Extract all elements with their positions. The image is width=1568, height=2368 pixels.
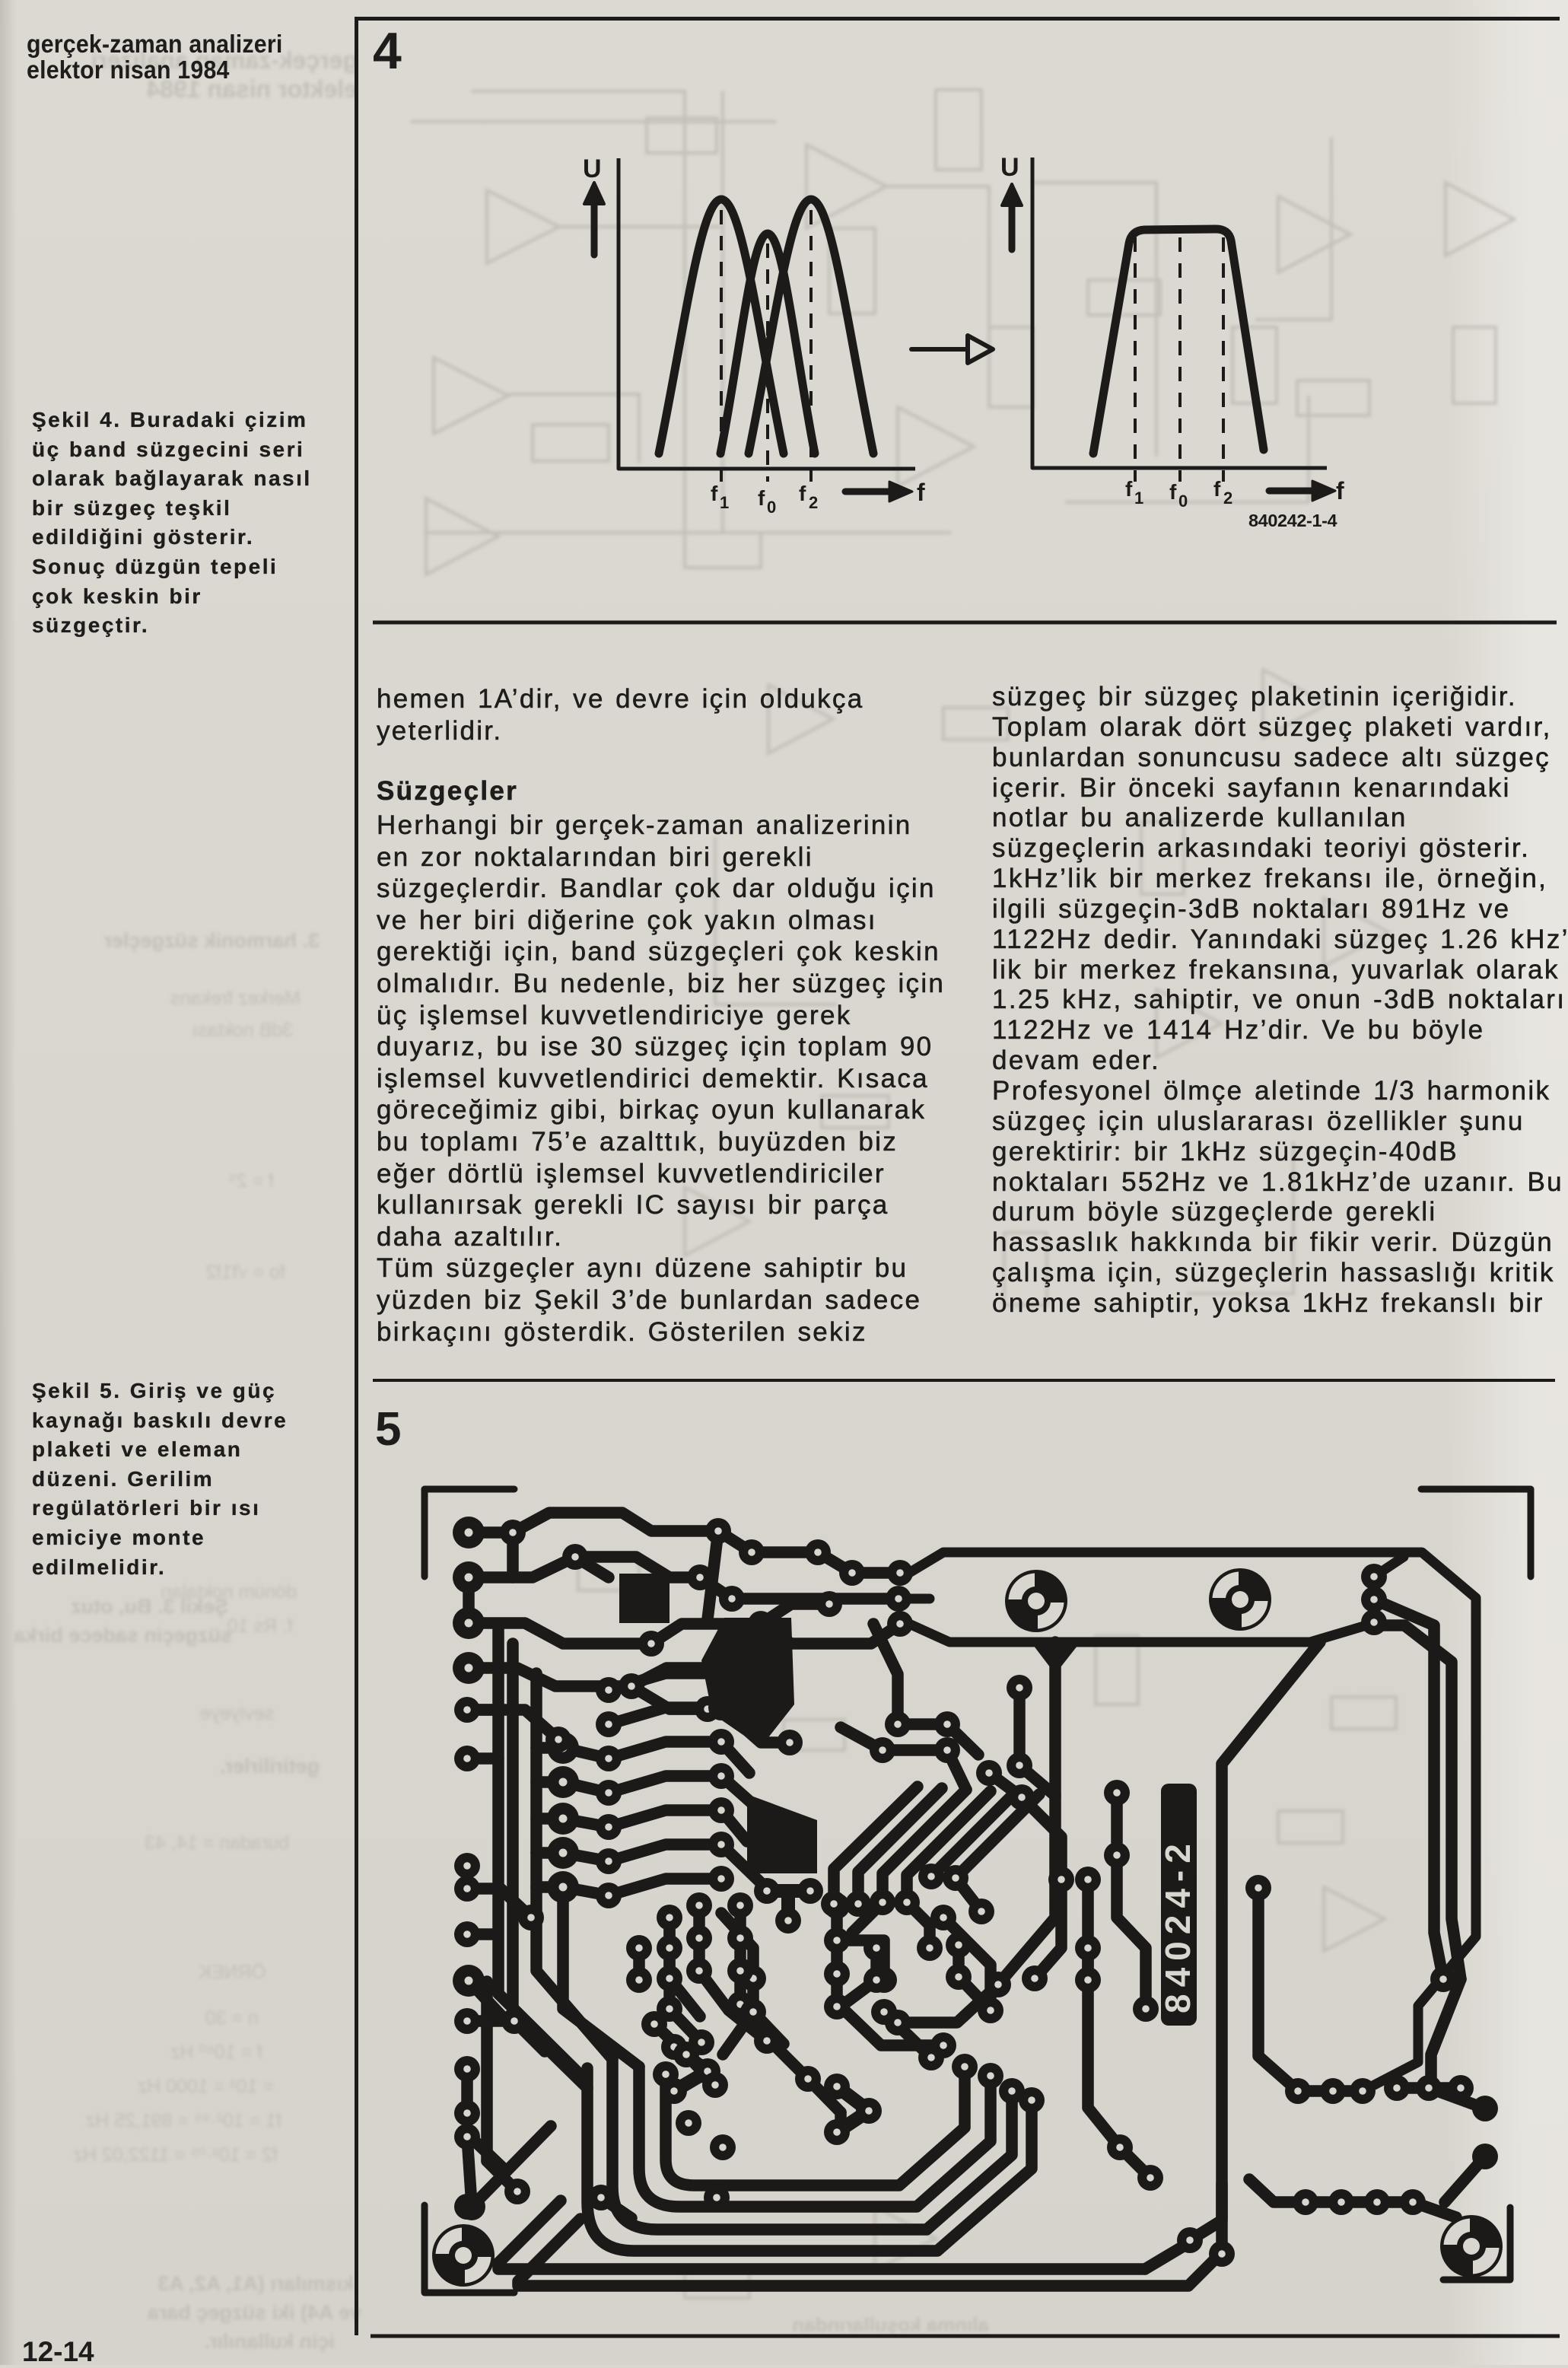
svg-text:f: f bbox=[799, 482, 806, 505]
svg-text:0: 0 bbox=[1178, 492, 1188, 511]
svg-text:f: f bbox=[917, 479, 925, 506]
svg-text:U: U bbox=[583, 154, 602, 183]
svg-text:f: f bbox=[758, 486, 765, 510]
svg-text:f: f bbox=[1169, 480, 1177, 504]
svg-text:f: f bbox=[1125, 477, 1133, 501]
svg-text:0: 0 bbox=[767, 498, 776, 517]
svg-text:840242-1-4: 840242-1-4 bbox=[1248, 511, 1337, 530]
svg-text:1: 1 bbox=[1134, 489, 1143, 508]
svg-text:U: U bbox=[1000, 153, 1019, 182]
svg-text:f: f bbox=[1213, 477, 1221, 501]
svg-text:1: 1 bbox=[720, 493, 729, 512]
svg-text:2: 2 bbox=[1223, 489, 1232, 508]
svg-text:f: f bbox=[1336, 477, 1344, 504]
svg-text:2: 2 bbox=[809, 493, 818, 512]
svg-text:f: f bbox=[711, 482, 718, 505]
svg-text:84024-2: 84024-2 bbox=[1158, 1837, 1197, 2013]
